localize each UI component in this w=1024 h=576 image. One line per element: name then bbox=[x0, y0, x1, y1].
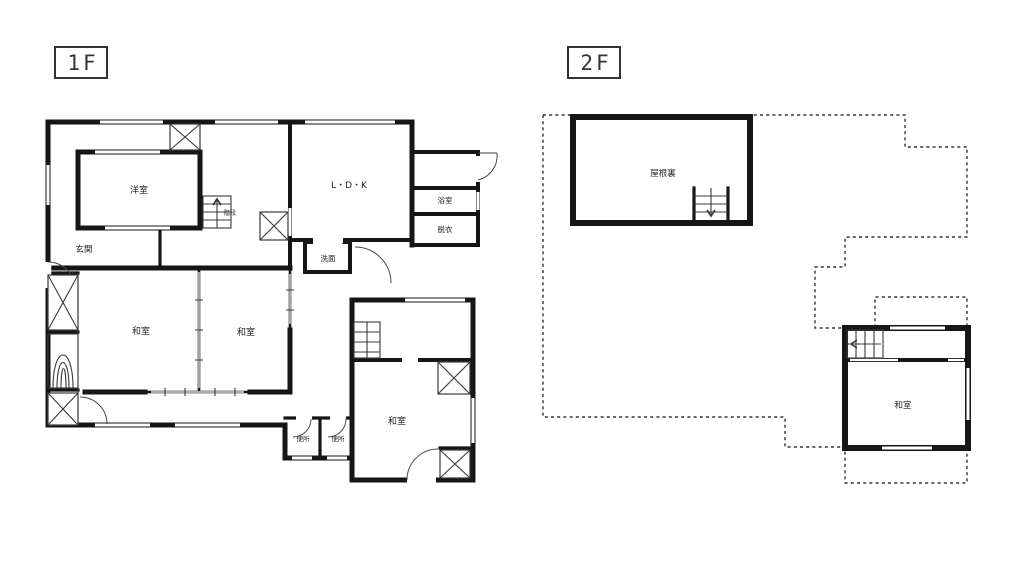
room-label-western: 洋室 bbox=[130, 184, 148, 196]
floorplan-drawing: 1F bbox=[0, 0, 1024, 576]
room-label-toilet-b: 便所 bbox=[332, 434, 346, 443]
tokonoma-icon bbox=[48, 334, 78, 388]
room-label-bath: 浴室 bbox=[438, 195, 453, 205]
closet-hatch-left-lower bbox=[48, 393, 78, 425]
room-label-stairs: 階段 bbox=[224, 209, 236, 217]
room-label-ldk: L・D・K bbox=[331, 181, 368, 191]
room-label-tatami2f: 和室 bbox=[894, 400, 912, 411]
floor-tag-2f: 2F bbox=[568, 47, 620, 78]
closet-hatch-south-upper bbox=[438, 362, 470, 394]
closet-hatch-top bbox=[170, 124, 200, 150]
roof-outline-dotted bbox=[543, 115, 967, 483]
floor-plan-1f: 1F bbox=[48, 47, 497, 480]
room-label-toilet-a: 便所 bbox=[297, 434, 311, 443]
room-label-entrance: 玄関 bbox=[75, 244, 92, 255]
floor-tag-label: 1F bbox=[67, 51, 98, 75]
closet-hatch-south-lower bbox=[440, 450, 470, 478]
closet-hatch-left-upper bbox=[48, 275, 78, 330]
outer-walls-1f bbox=[48, 122, 412, 458]
floor-plan-2f: 2F 屋根裏 和室 bbox=[543, 47, 968, 483]
room-label-washstand: 洗面 bbox=[321, 253, 336, 263]
closet-hatch-center bbox=[260, 212, 288, 240]
room-label-dressing: 脱衣 bbox=[438, 224, 453, 234]
room-label-tatami-left: 和室 bbox=[132, 325, 150, 337]
door-arcs-1f bbox=[48, 153, 497, 480]
stairs-left-icon bbox=[847, 330, 883, 358]
floor-tag-label: 2F bbox=[580, 51, 611, 75]
floor-tag-1f: 1F bbox=[55, 47, 107, 78]
stairs-south-icon bbox=[354, 322, 380, 358]
room-label-attic: 屋根裏 bbox=[650, 168, 676, 179]
tatami2f-walls bbox=[845, 328, 968, 448]
room-label-tatami-right: 和室 bbox=[237, 326, 255, 338]
stairs-down-icon bbox=[694, 188, 728, 220]
room-label-tatami-south: 和室 bbox=[388, 415, 406, 427]
floorplan-page: 1F bbox=[0, 0, 1024, 576]
sliding-partitions bbox=[147, 268, 294, 396]
